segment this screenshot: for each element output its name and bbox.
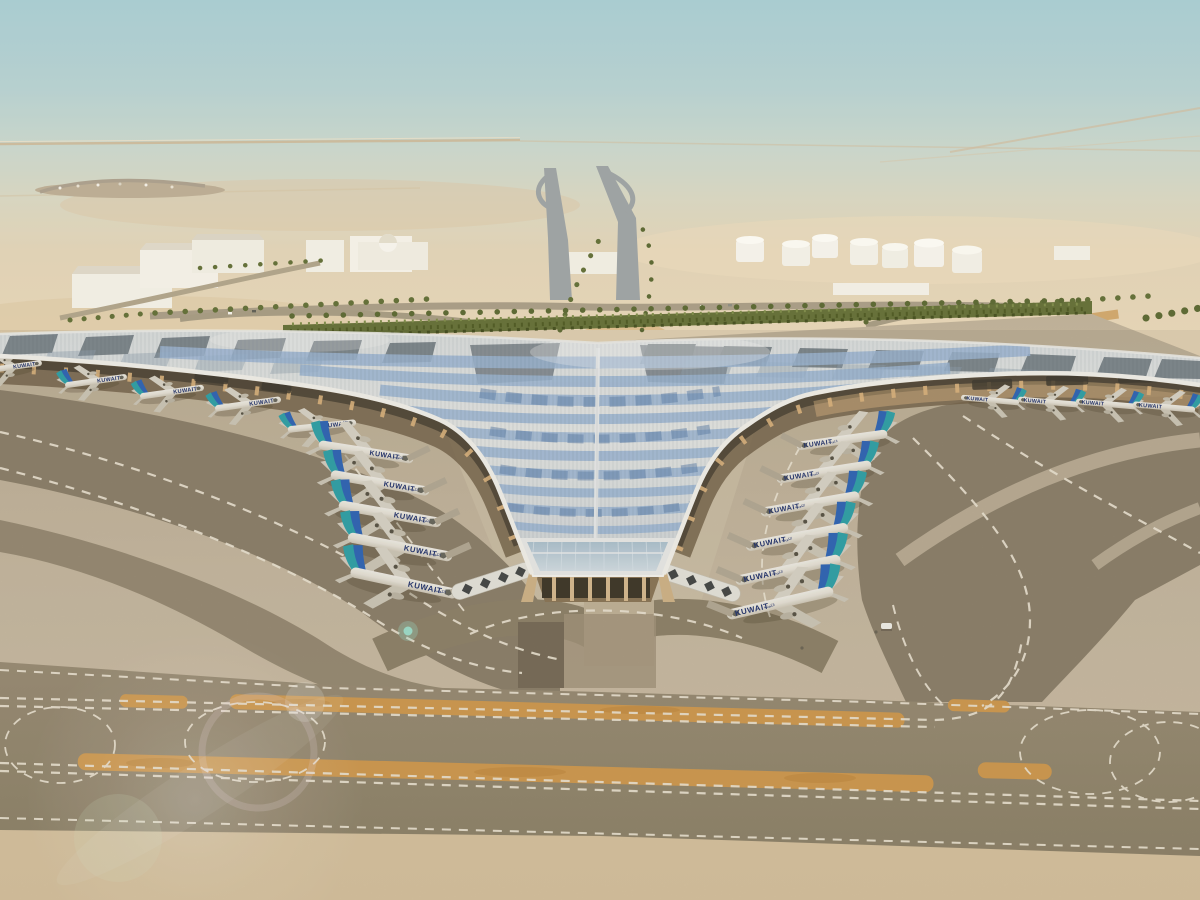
airport-aerial-rendering: KUWAIT KUWAIT KUWAIT KUWAIT KUWAIT KUWAI…: [0, 0, 1200, 900]
ground-grain: [0, 330, 1200, 900]
rendering-canvas: KUWAIT KUWAIT KUWAIT KUWAIT KUWAIT KUWAI…: [0, 0, 1200, 900]
